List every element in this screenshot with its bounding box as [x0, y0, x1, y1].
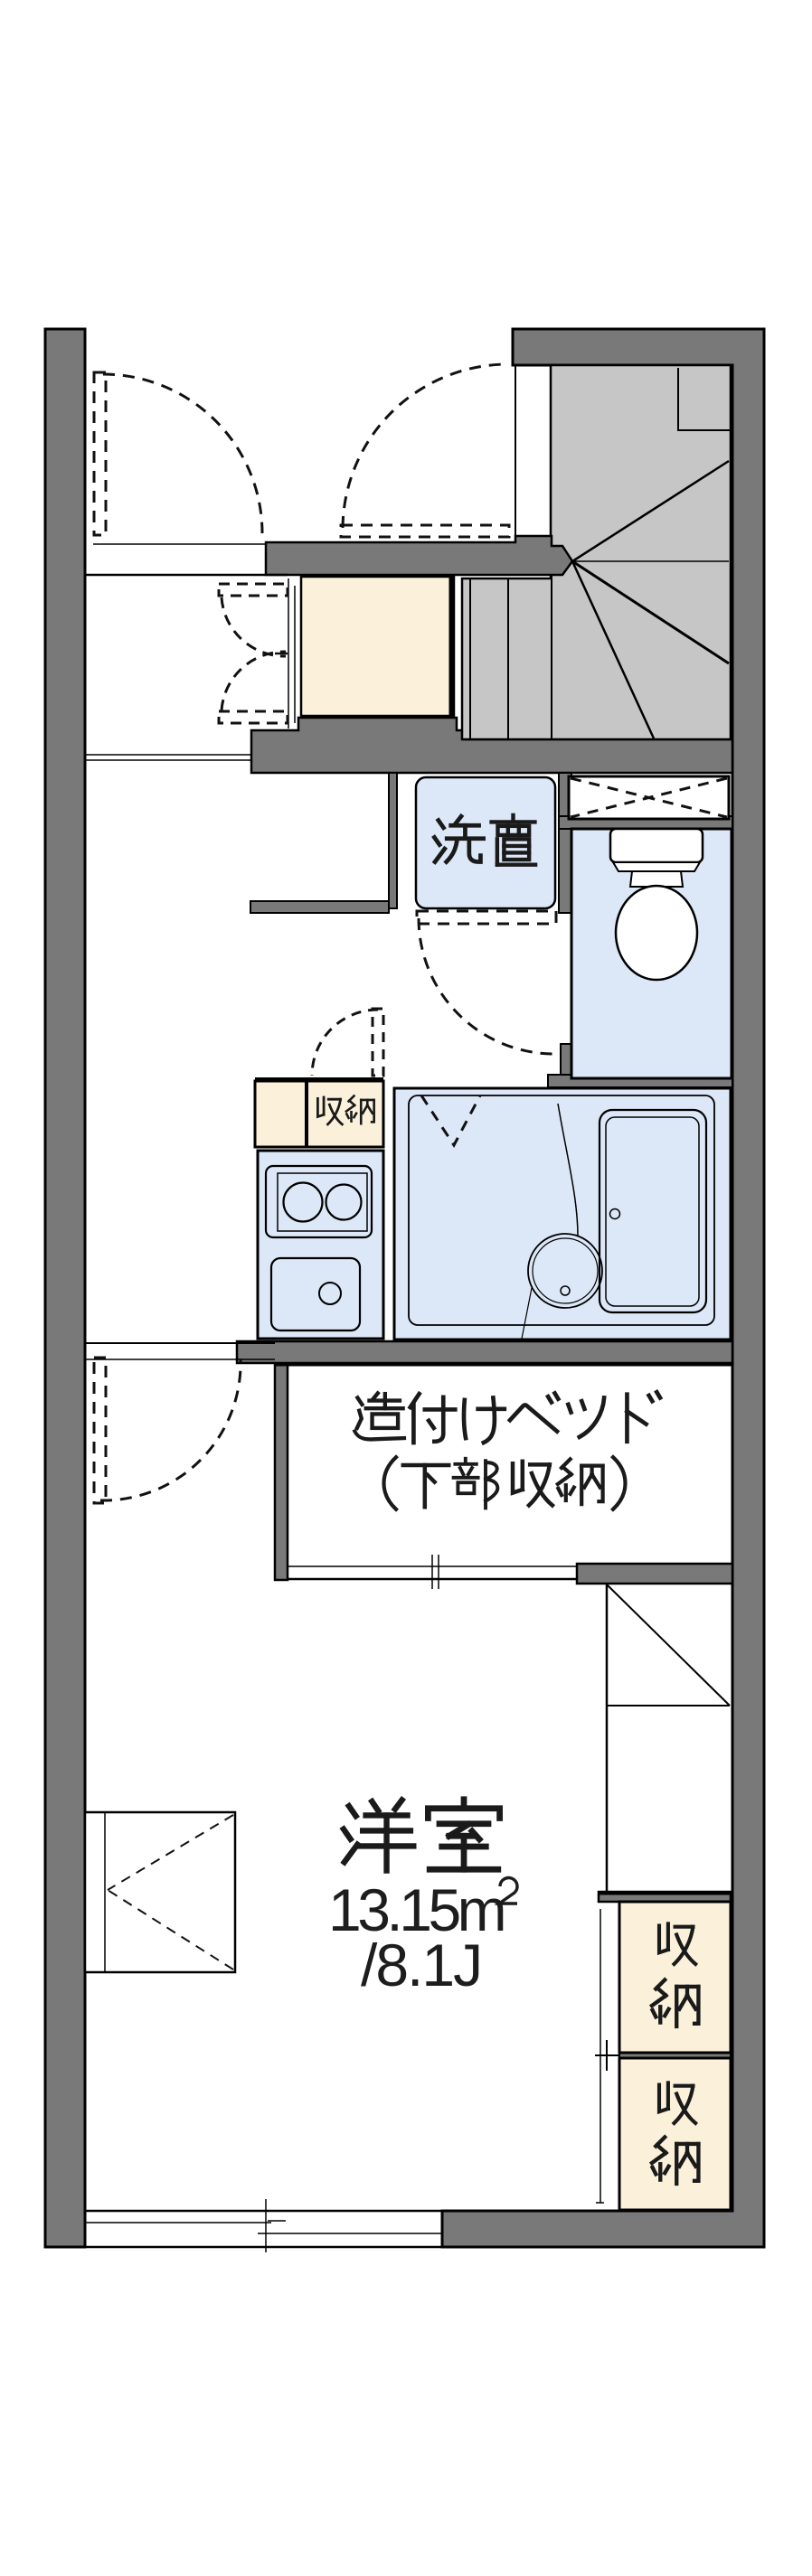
svg-text:/8.1J: /8.1J: [361, 1932, 481, 1998]
